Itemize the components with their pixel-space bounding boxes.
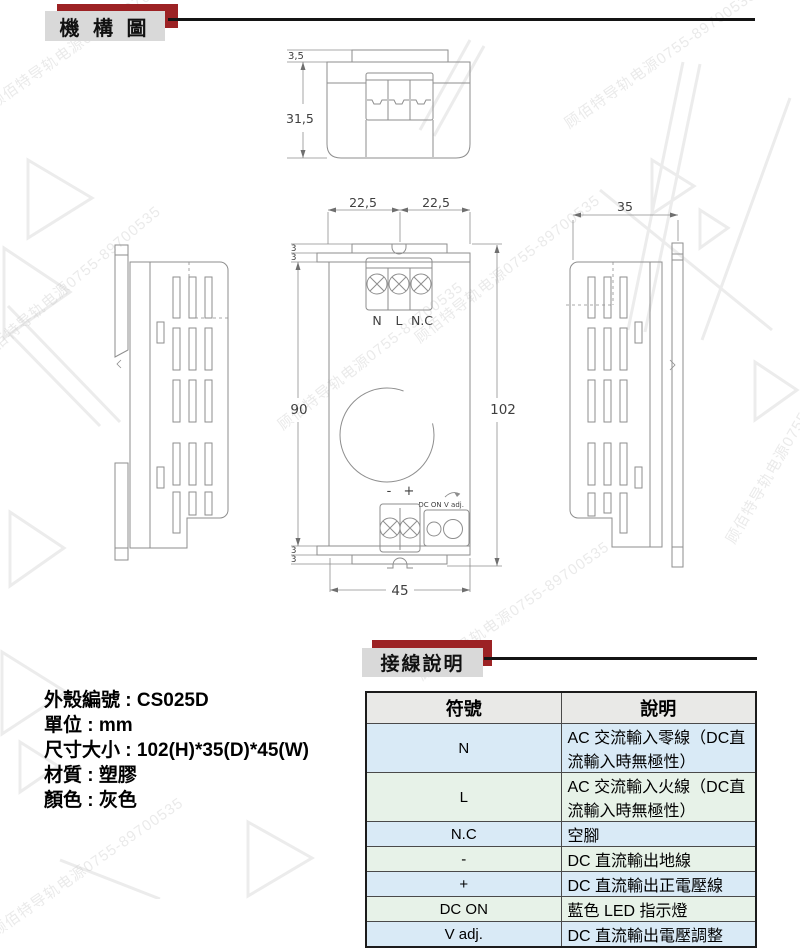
col-header-description: 說明	[561, 692, 756, 724]
dim-label-22-5-right: 22,5	[422, 198, 450, 210]
datasheet-page: { "header": { "title": "機 構 圖" }, "wirin…	[0, 0, 800, 899]
table-row: N AC 交流輸入零線（DC直流輸入時無極性）	[366, 724, 756, 773]
terminal-label-l: L	[396, 313, 403, 328]
symbol-cell: DC ON	[366, 897, 561, 922]
table-row: V adj. DC 直流輸出電壓調整	[366, 922, 756, 948]
table-row: L AC 交流輸入火線（DC直流輸入時無極性）	[366, 773, 756, 822]
symbol-cell: +	[366, 872, 561, 897]
dim-label-35: 35	[617, 199, 633, 214]
description-cell: 空腳	[561, 822, 756, 847]
front-view-drawing: 22,5 22,5 N L N.C - + DC ON V adj. 3 3 3…	[288, 198, 523, 603]
dim-label-31-5: 31,5	[286, 111, 314, 126]
dim-label-90: 90	[290, 402, 307, 418]
symbol-cell: -	[366, 847, 561, 872]
table-row: + DC 直流輸出正電壓線	[366, 872, 756, 897]
table-header-row: 符號 說明	[366, 692, 756, 724]
wiring-section-title: 接線說明	[362, 648, 483, 677]
terminal-label-n: N	[372, 313, 381, 328]
wiring-ribbon-line	[484, 657, 757, 660]
mechanical-section-title: 機 構 圖	[45, 11, 165, 41]
dim-label-step-bottom-b: 3	[291, 555, 296, 565]
terminal-label-plus: +	[404, 484, 415, 499]
spec-case-number: 外殼編號 : CS025D	[44, 688, 309, 713]
dim-label-step-top-b: 3	[291, 253, 296, 263]
col-header-symbol: 符號	[366, 692, 561, 724]
spec-unit: 單位 : mm	[44, 713, 309, 738]
symbol-cell: L	[366, 773, 561, 822]
wiring-table: 符號 說明 N AC 交流輸入零線（DC直流輸入時無極性） L AC 交流輸入火…	[365, 691, 757, 948]
description-cell: DC 直流輸出電壓調整	[561, 922, 756, 948]
terminal-label-nc: N.C	[411, 313, 433, 328]
terminal-label-minus: -	[387, 484, 392, 499]
dim-label-45: 45	[391, 583, 408, 599]
description-cell: DC 直流輸出地線	[561, 847, 756, 872]
panel-label-dc-on: DC ON	[418, 501, 441, 509]
dim-label-22-5-left: 22,5	[349, 198, 377, 210]
description-cell: AC 交流輸入零線（DC直流輸入時無極性）	[561, 724, 756, 773]
mechanical-ribbon-line	[168, 18, 755, 21]
case-specs: 外殼編號 : CS025D 單位 : mm 尺寸大小 : 102(H)*35(D…	[44, 688, 309, 813]
spec-color: 顏色 : 灰色	[44, 788, 309, 813]
mechanical-title-label: 機 構 圖	[59, 12, 150, 41]
wiring-title-label: 接線說明	[380, 649, 464, 676]
table-row: N.C 空腳	[366, 822, 756, 847]
vent-slots	[157, 277, 212, 533]
left-side-view-drawing	[105, 240, 275, 565]
dc-on-led	[427, 522, 441, 536]
symbol-cell: N	[366, 724, 561, 773]
symbol-cell: N.C	[366, 822, 561, 847]
right-side-view-drawing: 35	[558, 198, 738, 570]
description-cell: 藍色 LED 指示燈	[561, 897, 756, 922]
dim-label-102: 102	[490, 402, 516, 418]
description-cell: AC 交流輸入火線（DC直流輸入時無極性）	[561, 773, 756, 822]
table-row: DC ON 藍色 LED 指示燈	[366, 897, 756, 922]
symbol-cell: V adj.	[366, 922, 561, 948]
dim-label-3-5: 3,5	[288, 51, 304, 62]
description-cell: DC 直流輸出正電壓線	[561, 872, 756, 897]
panel-label-v-adj: V adj.	[444, 501, 464, 509]
v-adj-potentiometer	[444, 520, 463, 539]
vent-slots	[588, 277, 642, 533]
spec-material: 材質 : 塑膠	[44, 763, 309, 788]
table-row: - DC 直流輸出地線	[366, 847, 756, 872]
spec-size: 尺寸大小 : 102(H)*35(D)*45(W)	[44, 738, 309, 763]
top-view-drawing: 3,5 31,5	[285, 42, 520, 182]
